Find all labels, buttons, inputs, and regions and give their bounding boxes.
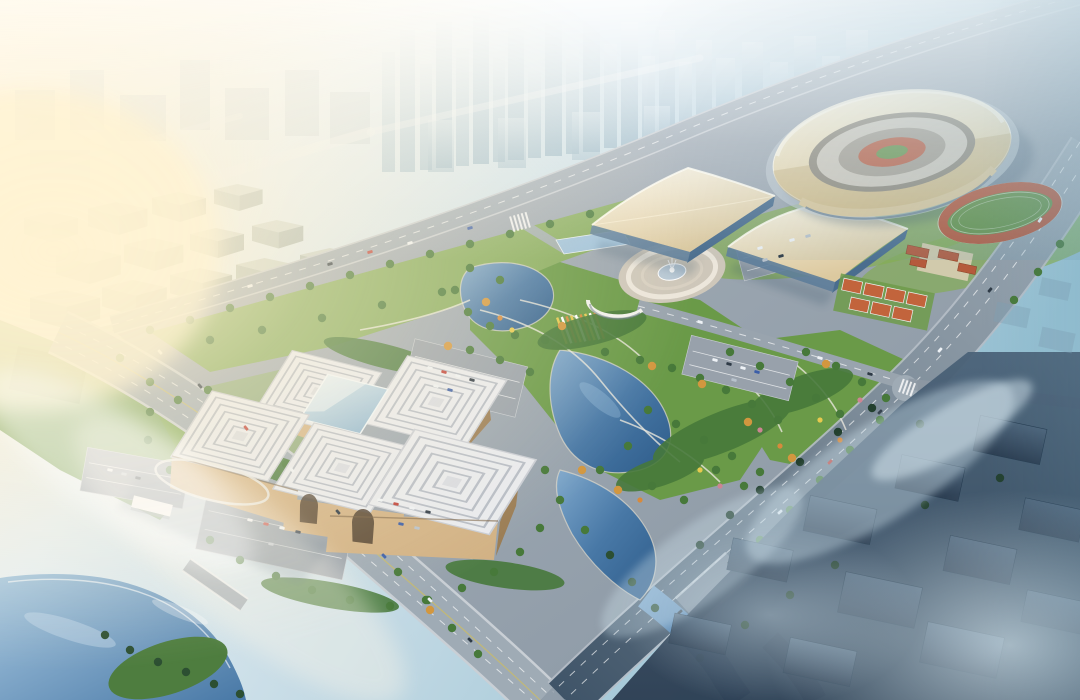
aerial-rendering: Aerial architectural rendering of a civi… [0,0,1080,700]
right-vignette [980,0,1080,700]
rendering-canvas: Aerial architectural rendering of a civi… [0,0,1080,700]
